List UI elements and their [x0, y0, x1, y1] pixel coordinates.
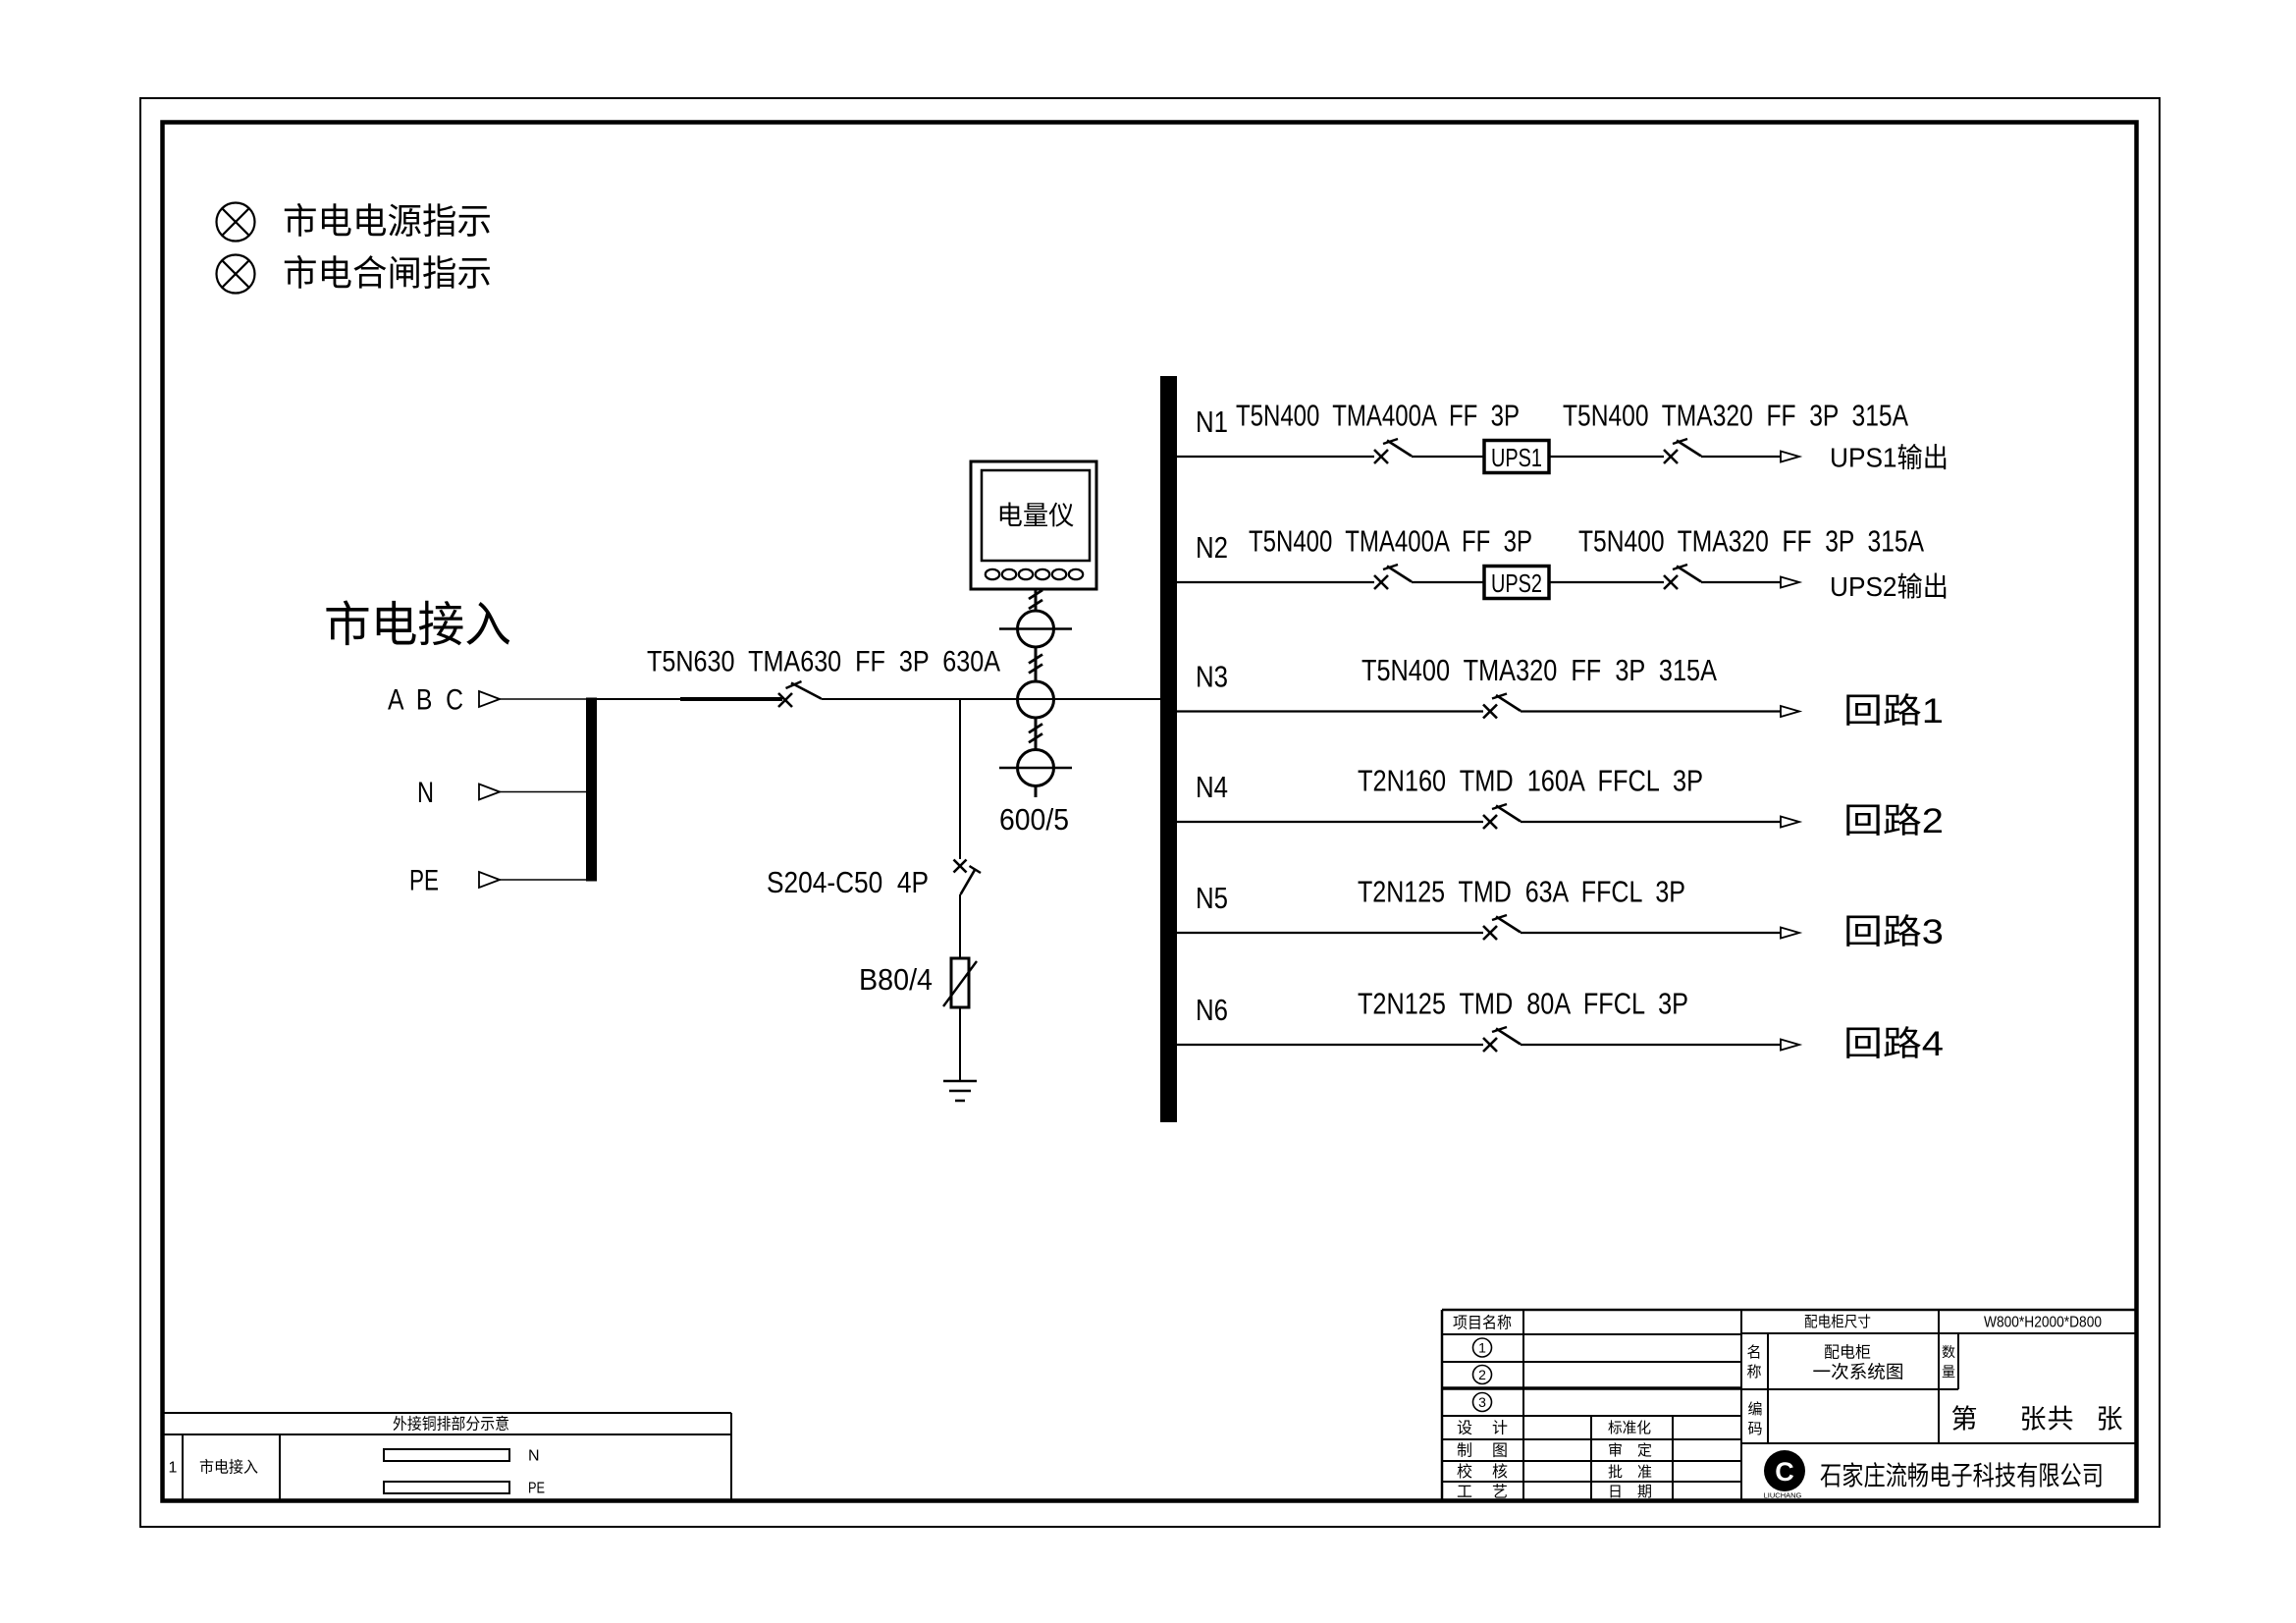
svg-text:UPS1输出: UPS1输出	[1830, 442, 1949, 472]
svg-text:设计: 设计	[1457, 1420, 1527, 1437]
svg-text:回路1: 回路1	[1843, 692, 1944, 730]
svg-text:日期: 日期	[1608, 1484, 1667, 1500]
svg-text:市电合闸指示: 市电合闸指示	[283, 253, 492, 294]
svg-text:市电电源指示: 市电电源指示	[283, 201, 492, 242]
svg-text:C: C	[1775, 1457, 1794, 1487]
svg-text:PE: PE	[409, 865, 439, 897]
svg-text:市电接入: 市电接入	[199, 1459, 258, 1477]
svg-text:N: N	[417, 777, 434, 809]
svg-text:回路2: 回路2	[1843, 802, 1944, 840]
svg-text:T5N400 TMA320 FF 3P 315A: T5N400 TMA320 FF 3P 315A	[1362, 654, 1718, 687]
svg-text:UPS2输出: UPS2输出	[1830, 571, 1949, 602]
svg-text:T5N400 TMA400A FF 3P: T5N400 TMA400A FF 3P	[1236, 400, 1520, 433]
svg-text:N3: N3	[1196, 659, 1228, 693]
svg-text:回路4: 回路4	[1843, 1025, 1944, 1063]
svg-text:600/5: 600/5	[999, 802, 1069, 837]
svg-text:配电柜尺寸: 配电柜尺寸	[1804, 1314, 1871, 1330]
svg-text:UPS1: UPS1	[1491, 443, 1542, 472]
svg-text:共: 共	[2048, 1405, 2074, 1434]
svg-text:数: 数	[1942, 1344, 1955, 1360]
svg-text:编: 编	[1747, 1401, 1762, 1418]
svg-text:量: 量	[1942, 1364, 1955, 1380]
svg-text:T5N400 TMA320 FF 3P 315A: T5N400 TMA320 FF 3P 315A	[1563, 400, 1909, 433]
svg-text:码: 码	[1747, 1421, 1762, 1437]
svg-text:石家庄流畅电子科技有限公司: 石家庄流畅电子科技有限公司	[1820, 1462, 2104, 1491]
svg-text:N5: N5	[1196, 881, 1228, 915]
svg-text:T2N160 TMD 160A FFCL 3P: T2N160 TMD 160A FFCL 3P	[1358, 765, 1703, 798]
svg-text:T5N630 TMA630 FF 3P 630A: T5N630 TMA630 FF 3P 630A	[647, 646, 1000, 678]
svg-text:市电接入: 市电接入	[324, 599, 511, 652]
svg-text:PE: PE	[528, 1481, 545, 1497]
svg-text:制图: 制图	[1457, 1442, 1527, 1460]
svg-text:电量仪: 电量仪	[997, 502, 1075, 531]
svg-text:回路3: 回路3	[1843, 913, 1944, 951]
svg-text:N: N	[528, 1448, 540, 1465]
svg-text:S204-C50 4P: S204-C50 4P	[767, 865, 929, 899]
svg-text:配电柜: 配电柜	[1824, 1344, 1871, 1362]
svg-text:UPS2: UPS2	[1491, 568, 1542, 598]
svg-text:外接铜排部分示意: 外接铜排部分示意	[393, 1415, 509, 1434]
svg-text:名: 名	[1746, 1344, 1761, 1361]
svg-text:N4: N4	[1196, 770, 1228, 804]
svg-text:W800*H2000*D800: W800*H2000*D800	[1984, 1315, 2102, 1331]
svg-text:T2N125 TMD 63A FFCL 3P: T2N125 TMD 63A FFCL 3P	[1358, 876, 1685, 909]
svg-text:批准: 批准	[1608, 1464, 1667, 1481]
svg-text:N6: N6	[1196, 993, 1228, 1027]
svg-text:T2N125 TMD 80A FFCL 3P: T2N125 TMD 80A FFCL 3P	[1358, 988, 1688, 1021]
svg-text:校核: 校核	[1457, 1463, 1527, 1481]
svg-text:第: 第	[1951, 1405, 1978, 1434]
svg-text:T5N400 TMA400A FF 3P: T5N400 TMA400A FF 3P	[1249, 525, 1532, 559]
svg-text:T5N400 TMA320 FF 3P 315A: T5N400 TMA320 FF 3P 315A	[1578, 525, 1925, 559]
svg-text:N1: N1	[1196, 405, 1228, 439]
svg-text:B80/4: B80/4	[859, 962, 933, 997]
svg-text:工艺: 工艺	[1457, 1484, 1527, 1501]
svg-text:标准化: 标准化	[1608, 1420, 1651, 1436]
svg-text:A B C: A B C	[388, 684, 463, 717]
svg-text:审定: 审定	[1608, 1442, 1667, 1459]
svg-text:3: 3	[1478, 1394, 1486, 1410]
svg-text:张: 张	[2097, 1405, 2123, 1434]
svg-text:项目名称: 项目名称	[1453, 1315, 1512, 1332]
svg-text:称: 称	[1746, 1364, 1761, 1380]
svg-text:1: 1	[1478, 1339, 1486, 1355]
svg-text:张: 张	[2020, 1405, 2047, 1434]
svg-text:一次系统图: 一次系统图	[1813, 1362, 1904, 1381]
svg-text:1: 1	[169, 1460, 178, 1477]
svg-text:N2: N2	[1196, 530, 1228, 565]
svg-text:LIUCHANG: LIUCHANG	[1764, 1491, 1802, 1500]
svg-text:2: 2	[1478, 1367, 1486, 1382]
